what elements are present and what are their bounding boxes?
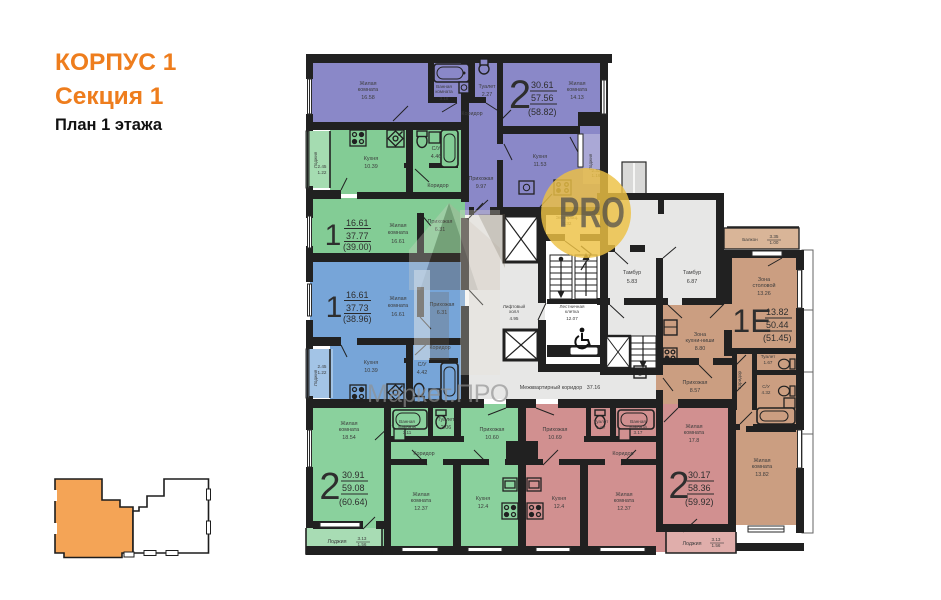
svg-text:30.17: 30.17 <box>688 470 711 480</box>
svg-text:Коридор: Коридор <box>737 370 742 389</box>
svg-text:Секция 1: Секция 1 <box>55 83 163 110</box>
svg-text:1: 1 <box>326 291 343 324</box>
svg-text:30.91: 30.91 <box>342 470 365 480</box>
svg-text:2.451.22: 2.451.22 <box>318 164 327 175</box>
svg-text:Лоджия: Лоджия <box>682 541 701 547</box>
svg-text:План 1 этажа: План 1 этажа <box>55 116 163 134</box>
svg-text:КОРПУС 1: КОРПУС 1 <box>55 49 176 76</box>
svg-text:2.451.22: 2.451.22 <box>318 364 327 375</box>
svg-text:30.61: 30.61 <box>531 80 554 90</box>
svg-text:2: 2 <box>319 466 340 508</box>
svg-text:(39.00): (39.00) <box>343 242 372 252</box>
svg-text:58.36: 58.36 <box>688 483 711 493</box>
svg-text:Коридор: Коридор <box>612 451 633 457</box>
svg-text:1: 1 <box>325 219 342 252</box>
svg-text:(59.92): (59.92) <box>685 497 714 507</box>
svg-text:Коридор: Коридор <box>427 183 448 189</box>
svg-text:3.351.00: 3.351.00 <box>770 234 779 245</box>
svg-text:37.77: 37.77 <box>346 231 369 241</box>
svg-text:3.131.56: 3.131.56 <box>712 537 721 548</box>
svg-text:Лоджия: Лоджия <box>327 539 346 545</box>
svg-text:Балкон: Балкон <box>742 237 758 242</box>
svg-text:Коридор: Коридор <box>413 451 434 457</box>
svg-text:37.73: 37.73 <box>346 303 369 313</box>
svg-text:С/У4.32: С/У4.32 <box>762 384 771 395</box>
svg-text:50.44: 50.44 <box>766 320 789 330</box>
svg-text:PRO: PRO <box>559 189 625 237</box>
svg-text:Коридор: Коридор <box>461 111 482 117</box>
svg-text:13.82: 13.82 <box>766 307 789 317</box>
svg-text:3.131.56: 3.131.56 <box>358 536 367 547</box>
svg-text:(38.96): (38.96) <box>343 314 372 324</box>
svg-text:16.61: 16.61 <box>346 218 369 228</box>
svg-text:57.56: 57.56 <box>531 93 554 103</box>
svg-text:Маркет.ПРО: Маркет.ПРО <box>367 380 509 408</box>
svg-text:(60.64): (60.64) <box>339 497 368 507</box>
svg-text:(51.45): (51.45) <box>763 333 792 343</box>
svg-text:(58.82): (58.82) <box>528 107 557 117</box>
svg-text:16.61: 16.61 <box>346 290 369 300</box>
svg-text:59.08: 59.08 <box>342 483 365 493</box>
svg-text:Межквартирный коридор 37.16: Межквартирный коридор 37.16 <box>520 384 601 391</box>
